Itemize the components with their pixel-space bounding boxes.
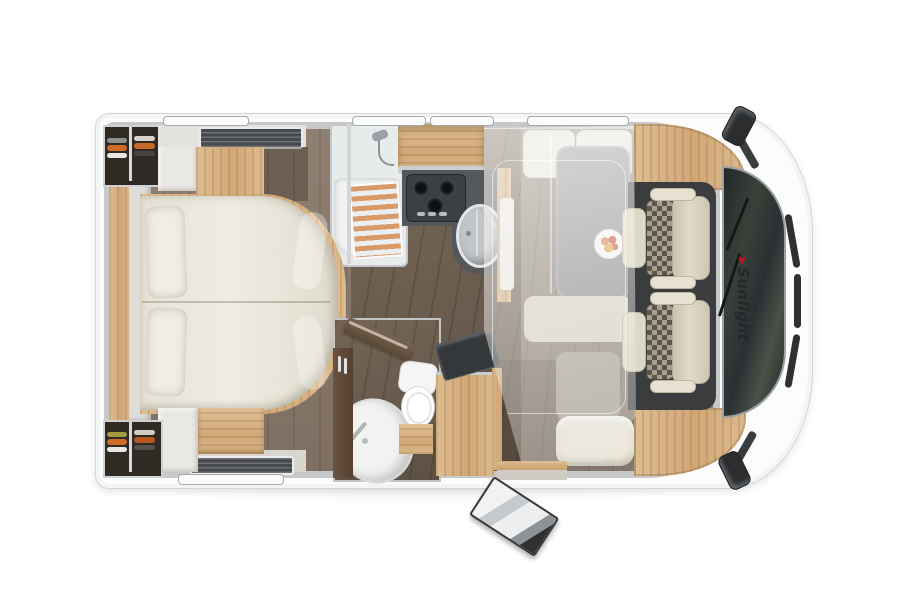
sink-drain <box>466 231 471 236</box>
wall-window <box>527 116 629 126</box>
clothes-roll <box>107 138 127 143</box>
pillow <box>144 205 187 298</box>
drop-down-bed-seam <box>550 134 552 294</box>
wall-window <box>163 116 249 126</box>
towel-bar <box>338 356 341 372</box>
clothes-roll <box>107 447 127 452</box>
door-threshold <box>497 461 567 470</box>
drop-down-bed-mattress-edge <box>492 160 626 414</box>
wardrobe-top-divider <box>129 127 132 181</box>
bathroom-vanity <box>333 348 353 478</box>
brand-logo: ➤Sunlight <box>736 238 752 358</box>
windshield <box>722 166 786 418</box>
hob-knob <box>439 212 447 216</box>
hob-knob <box>428 212 436 216</box>
cab-seat-armrest <box>650 292 696 305</box>
cab-seat-armrest <box>650 276 696 289</box>
pillow <box>144 307 187 396</box>
wall-window <box>178 474 284 485</box>
clothes-roll <box>107 153 127 158</box>
foot-bench-wood <box>198 408 264 454</box>
towel-bar <box>344 358 347 374</box>
headboard-shadow <box>264 147 308 201</box>
wall-window <box>352 116 426 126</box>
clothes-roll <box>107 439 127 445</box>
tv-cabinet <box>436 372 494 476</box>
motorhome-floorplan: ➤Sunlight <box>0 0 900 600</box>
shower-wall <box>347 124 351 264</box>
basin-drain <box>362 438 368 444</box>
brand-logo-text: Sunlight <box>734 267 752 341</box>
sink-lid-line <box>476 210 478 256</box>
clothes-roll <box>107 432 127 437</box>
grille-slat <box>794 274 801 328</box>
kitchen-overhead-shelf <box>398 124 484 172</box>
cab-seat-cushion <box>672 300 710 384</box>
cab-seat-armrest <box>650 188 696 201</box>
wall-window <box>430 116 494 126</box>
hob-burner <box>439 180 455 196</box>
clothes-roll <box>134 151 155 156</box>
toilet-step-wood <box>399 424 433 454</box>
overhead-cabinet-bottom <box>158 408 198 472</box>
headboard-wood <box>196 147 264 199</box>
clothes-roll <box>134 437 155 443</box>
clothes-roll <box>134 445 155 450</box>
cab-seat-cushion <box>672 196 710 280</box>
hob-knob <box>417 212 425 216</box>
cab-seat-armrest <box>650 380 696 393</box>
cab-seat-backrest <box>646 304 674 380</box>
clothes-roll <box>134 430 155 435</box>
shower-slat-mat <box>348 181 403 259</box>
clothes-roll <box>134 136 155 141</box>
clothes-roll <box>107 145 127 151</box>
brand-logo-icon: ➤ <box>734 255 749 266</box>
roof-vent-top <box>199 127 303 149</box>
cab-seat-backrest <box>646 200 674 276</box>
roof-vent-bottom <box>190 456 294 475</box>
bed-mattress-seam <box>142 301 330 303</box>
hob-burner <box>413 180 429 196</box>
wardrobe-bottom-divider <box>129 422 132 472</box>
bedside-wood-shelf <box>109 180 131 424</box>
clothes-roll <box>134 143 155 149</box>
toilet-seat-ring <box>406 392 432 424</box>
